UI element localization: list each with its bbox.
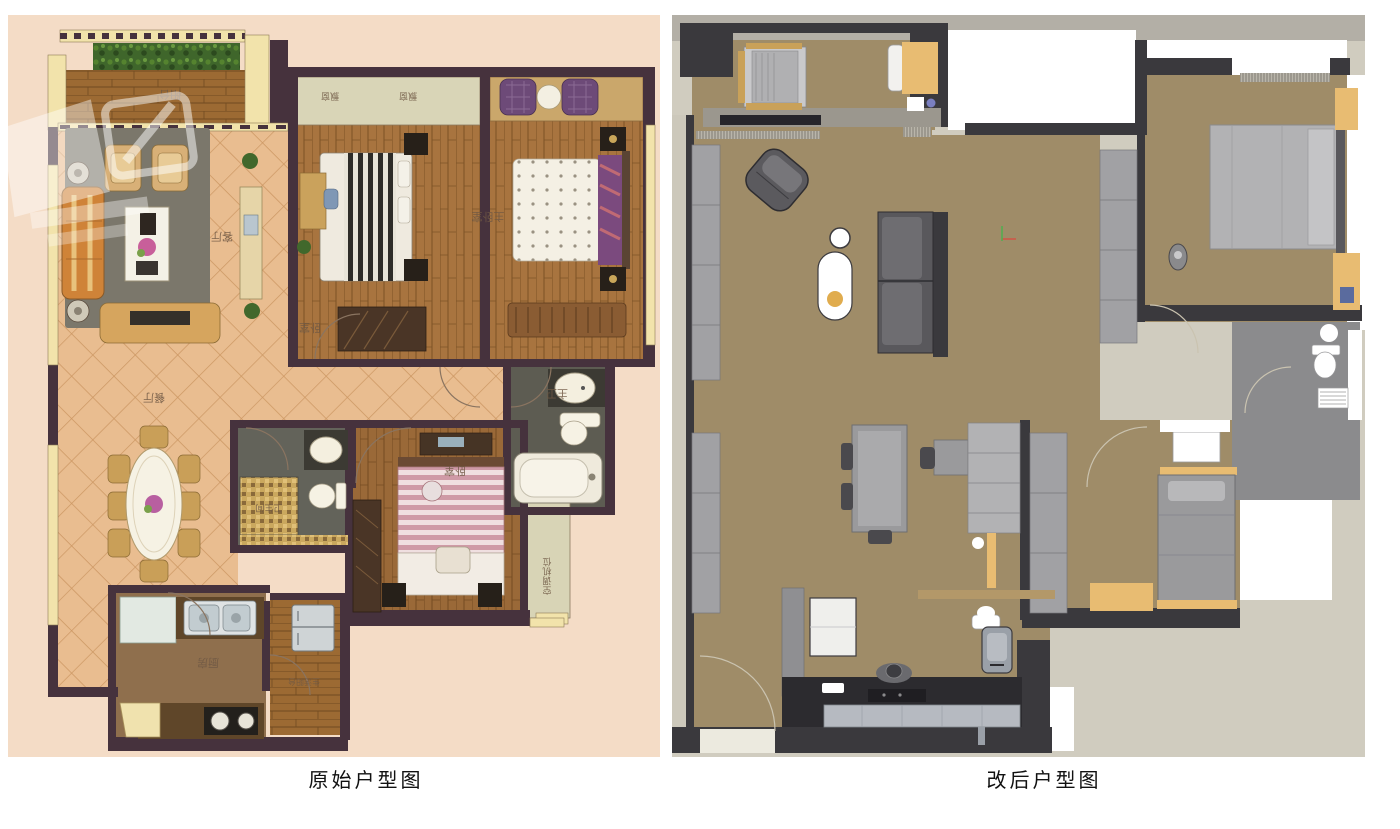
toilet (336, 483, 346, 509)
dining-chair (868, 530, 892, 544)
bed-striped-duvet (344, 153, 396, 281)
round-stool (830, 228, 850, 248)
nightstand (404, 133, 428, 155)
gold-trim (746, 43, 802, 49)
dining-chair (178, 455, 200, 483)
bathroom-floor (1232, 322, 1360, 500)
bedroom-bottom-label: 卧室 (444, 464, 466, 478)
bed-end-bench (508, 303, 626, 337)
wardrobe (338, 307, 426, 351)
dining-chair (140, 426, 168, 448)
tray (822, 683, 844, 693)
kitchen-counter (824, 705, 1020, 727)
nightstand (907, 97, 924, 111)
nightstand (404, 259, 428, 281)
bed-pillow (1168, 481, 1225, 501)
dining-chair (841, 483, 853, 510)
window-seat (1173, 432, 1220, 462)
bed-frame (1336, 121, 1345, 253)
bedroom-top-label: 卧室 (299, 321, 321, 335)
hedge-planter (93, 43, 240, 70)
rug-stool (827, 291, 843, 307)
pillow (398, 197, 410, 223)
left-window-strip (672, 115, 686, 730)
wall-hatch (903, 127, 931, 137)
plant (244, 303, 260, 319)
yellow-runner (1157, 600, 1237, 609)
master-bedroom-label: 主卧室 (472, 210, 505, 224)
original-floor-plan-image: 阳台 飘窗 飘窗 客厅 餐厅 卧室 主卧室 主卫 卫生间 卧室 厨房 生活阳台 … (8, 15, 660, 757)
bar-counter (918, 590, 1055, 599)
dining-chair (841, 443, 853, 470)
gold-trim (746, 103, 802, 110)
oval-rug (818, 252, 852, 320)
dining-room-label: 餐厅 (143, 391, 165, 405)
corner-cabinet (120, 703, 160, 737)
bed-pillows (1308, 129, 1334, 245)
tv (130, 311, 190, 325)
gold-trim (738, 51, 745, 103)
desk (934, 440, 968, 475)
dining-chair (108, 455, 130, 483)
wardrobe (1030, 433, 1067, 613)
window-hatch (1240, 73, 1330, 82)
bed-bench (436, 547, 470, 573)
nightstand-yellow (1335, 88, 1358, 130)
stool-blue (1340, 287, 1354, 303)
burner (211, 712, 229, 730)
plant (297, 240, 311, 254)
yellow-door (987, 533, 996, 588)
tv-bar (720, 115, 821, 125)
master-bathroom-label: 主卫 (546, 387, 568, 400)
desk-chair (920, 447, 935, 469)
wardrobe-left (692, 145, 720, 613)
dining-chair (140, 560, 168, 582)
sink (310, 437, 342, 463)
sofa (878, 212, 933, 353)
wc-sink (972, 537, 984, 549)
headboard (622, 151, 630, 269)
daybed-blanket (902, 42, 938, 94)
wardrobe (353, 500, 381, 612)
counter-leg (978, 727, 985, 745)
bay-window-label: 飘窗 (321, 90, 339, 102)
console-table (240, 187, 262, 299)
kitchen-cabinet (120, 597, 176, 643)
ac-platform-label: 空调机位 (542, 556, 551, 596)
utility-balcony-label: 生活阳台 (288, 677, 320, 687)
window-hatch (696, 131, 820, 139)
island-hood (868, 689, 926, 702)
round-sink (1320, 324, 1338, 342)
bathroom-label: 卫生间 (255, 502, 282, 514)
daybed-pillow (888, 45, 904, 91)
nightstand (478, 583, 502, 607)
toilet (1314, 352, 1336, 378)
bay-window-sill (295, 77, 480, 125)
bay-round-table (537, 85, 561, 109)
dining-chair (178, 529, 200, 557)
shower-bench (1318, 388, 1348, 408)
yellow-rug (1090, 583, 1153, 611)
stool (927, 99, 936, 108)
wardrobe (1100, 150, 1137, 343)
nightstand (382, 583, 406, 607)
hall-floor (932, 135, 1100, 425)
screenshot-root: 阳台 飘窗 飘窗 客厅 餐厅 卧室 主卧室 主卫 卫生间 卧室 厨房 生活阳台 … (0, 0, 1400, 829)
kitchen-label: 厨房 (197, 656, 219, 669)
right-plan-caption: 改后户型图 (934, 764, 1154, 793)
left-plan-caption: 原始户型图 (256, 764, 476, 793)
mosaic-strip (240, 535, 348, 545)
pillow (398, 161, 410, 187)
burner (238, 713, 254, 729)
living-room-label: 客厅 (211, 230, 233, 244)
entry-door (700, 729, 775, 753)
desk (300, 173, 326, 229)
bay-window-label: 飘窗 (399, 90, 417, 102)
master-bed-duvet (513, 159, 601, 261)
yellow-runner (1160, 467, 1237, 475)
renovated-floor-plan-image (672, 15, 1365, 757)
bed-striped-duvet (398, 467, 504, 553)
plant (242, 153, 258, 169)
storage-cabinet (968, 423, 1020, 533)
desk-chair (324, 189, 338, 209)
dining-chair (108, 529, 130, 557)
